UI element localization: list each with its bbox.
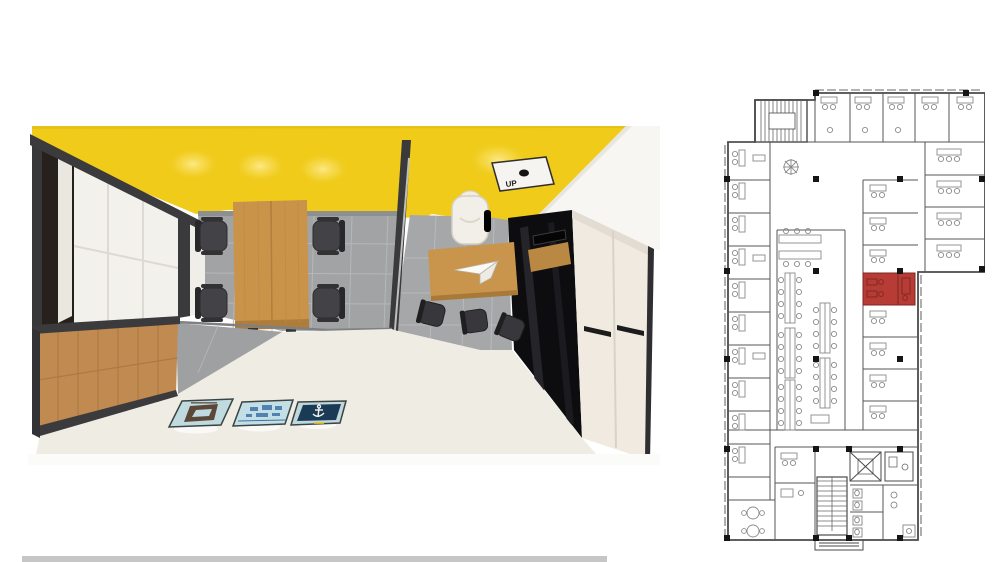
stairs-bottom	[817, 477, 847, 535]
wall-post	[32, 140, 42, 331]
floor-plan-svg	[715, 85, 985, 561]
room-render-svg: UP	[28, 118, 660, 465]
poster-blueprint	[233, 400, 293, 426]
wardrobe-cabinet	[572, 210, 654, 461]
panel-dot	[519, 170, 529, 177]
plant-glyph	[783, 159, 799, 175]
room-render-image: UP	[28, 118, 660, 465]
floor-posters	[169, 399, 346, 434]
highlighted-room	[863, 273, 915, 305]
meeting-table	[233, 200, 309, 333]
poster-anchor	[291, 401, 346, 425]
up-panel-label: UP	[505, 179, 518, 189]
floor-plan-image	[715, 85, 985, 561]
up-ceiling-panel: UP	[492, 157, 554, 191]
office-desk	[428, 242, 518, 301]
white-door	[58, 156, 72, 323]
entrance-porch	[815, 540, 863, 550]
bottom-divider-strip	[22, 556, 607, 562]
wall-post	[178, 215, 190, 318]
